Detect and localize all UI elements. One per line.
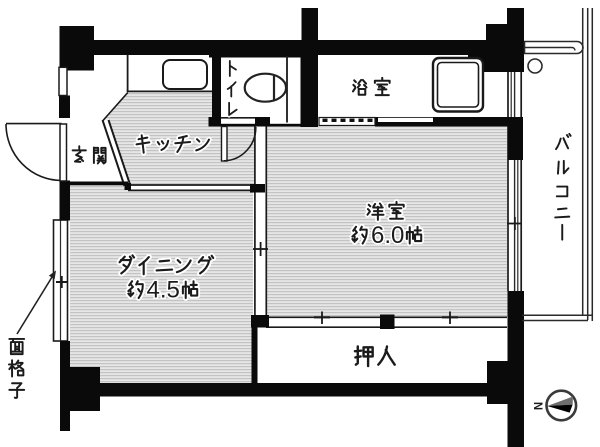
svg-text:6.0: 6.0 <box>371 222 404 249</box>
svg-text:4.5: 4.5 <box>147 276 180 303</box>
svg-text:N: N <box>534 402 546 410</box>
